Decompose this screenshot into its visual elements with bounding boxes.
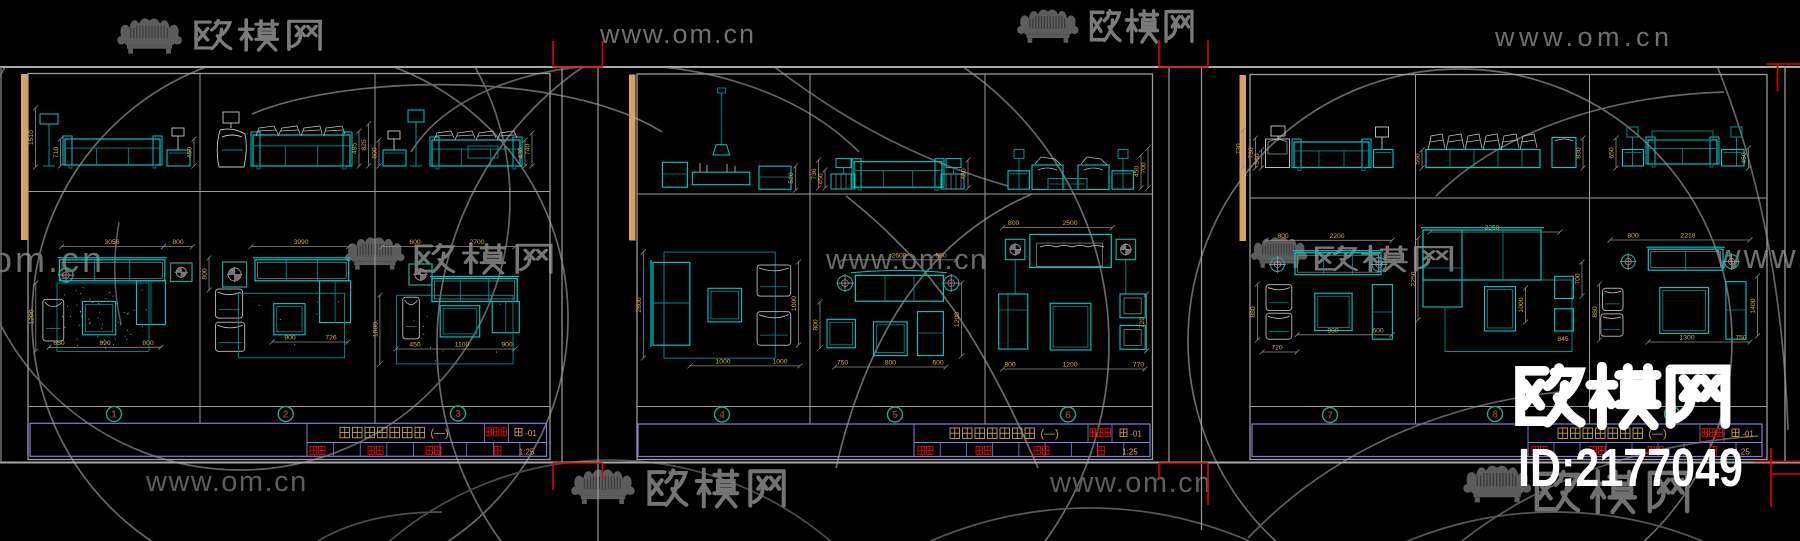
svg-text:1:25: 1:25 xyxy=(519,448,535,457)
svg-text:740: 740 xyxy=(525,144,532,156)
svg-text:750: 750 xyxy=(1735,335,1747,342)
svg-text:1200: 1200 xyxy=(954,312,961,327)
svg-text:1300: 1300 xyxy=(1679,335,1694,342)
svg-text:880: 880 xyxy=(1592,306,1599,318)
svg-text:1000: 1000 xyxy=(772,358,787,365)
svg-text:560: 560 xyxy=(1254,153,1261,165)
svg-text:1: 1 xyxy=(111,410,117,421)
svg-text:ID:2177049: ID:2177049 xyxy=(1518,438,1743,498)
svg-text:www.om: www.om xyxy=(1715,238,1800,276)
svg-text:450: 450 xyxy=(409,342,421,349)
svg-text:450: 450 xyxy=(187,147,194,159)
svg-text:-01: -01 xyxy=(1130,430,1142,439)
svg-text:700: 700 xyxy=(1141,162,1148,174)
svg-text:2250: 2250 xyxy=(1411,271,1418,286)
svg-text:450: 450 xyxy=(961,168,968,180)
svg-text:3: 3 xyxy=(455,409,461,420)
svg-text:990: 990 xyxy=(99,340,111,347)
svg-text:770: 770 xyxy=(1133,362,1145,369)
svg-text:1800: 1800 xyxy=(372,322,379,337)
svg-text:600: 600 xyxy=(372,147,379,159)
svg-text:720: 720 xyxy=(1271,345,1283,352)
svg-text:-01: -01 xyxy=(1742,430,1754,439)
svg-text:3990: 3990 xyxy=(293,239,308,246)
svg-text:1400: 1400 xyxy=(1750,298,1757,313)
svg-text:1200: 1200 xyxy=(1062,362,1077,369)
svg-text:2218: 2218 xyxy=(1680,233,1695,240)
svg-text:1000: 1000 xyxy=(791,296,798,311)
svg-text:2800: 2800 xyxy=(636,297,643,312)
svg-text:2600: 2600 xyxy=(891,252,906,259)
svg-text:710: 710 xyxy=(53,147,60,159)
svg-text:-01: -01 xyxy=(525,429,537,438)
svg-text:600: 600 xyxy=(409,239,421,246)
svg-text:600: 600 xyxy=(1372,327,1384,334)
svg-text:845: 845 xyxy=(1557,336,1569,343)
svg-text:800: 800 xyxy=(1627,233,1639,240)
svg-text:900: 900 xyxy=(1327,327,1339,334)
svg-text:560: 560 xyxy=(1415,153,1422,165)
svg-text:www.om.cn: www.om.cn xyxy=(599,19,756,49)
svg-text:650: 650 xyxy=(1609,147,1616,159)
svg-text:3056: 3056 xyxy=(104,239,119,246)
svg-text:430: 430 xyxy=(518,147,525,159)
svg-text:www.om.cn: www.om.cn xyxy=(1494,22,1674,52)
svg-text:6: 6 xyxy=(1065,410,1071,421)
svg-text:(—): (—) xyxy=(430,427,448,439)
svg-text:www.om.cn: www.om.cn xyxy=(1049,467,1212,499)
svg-text:1100: 1100 xyxy=(455,342,470,349)
svg-text:800: 800 xyxy=(1277,233,1289,240)
svg-text:800: 800 xyxy=(885,360,897,367)
svg-text:800: 800 xyxy=(813,319,820,331)
svg-text:1:25: 1:25 xyxy=(1122,448,1138,457)
svg-text:800: 800 xyxy=(142,340,154,347)
svg-text:450: 450 xyxy=(1741,152,1748,164)
svg-text:600: 600 xyxy=(932,360,944,367)
svg-text:750: 750 xyxy=(837,360,849,367)
svg-text:830: 830 xyxy=(1576,147,1583,159)
svg-text:7: 7 xyxy=(1327,411,1333,422)
svg-text:(—): (—) xyxy=(1040,428,1058,440)
svg-text:www.om.cn: www.om.cn xyxy=(145,466,308,498)
svg-text:730: 730 xyxy=(1236,143,1243,155)
svg-text:520: 520 xyxy=(788,172,795,184)
svg-text:900: 900 xyxy=(501,342,513,349)
svg-text:4: 4 xyxy=(719,410,725,421)
svg-text:450: 450 xyxy=(1134,166,1141,178)
svg-text:1000: 1000 xyxy=(1518,297,1525,312)
svg-text:2500: 2500 xyxy=(1062,220,1077,227)
svg-text:2200: 2200 xyxy=(1329,233,1344,240)
svg-text:1200: 1200 xyxy=(28,309,35,324)
svg-text:485: 485 xyxy=(352,143,359,155)
svg-text:8: 8 xyxy=(1492,410,1498,421)
svg-text:825: 825 xyxy=(361,139,368,151)
svg-text:880: 880 xyxy=(1250,306,1257,318)
svg-text:800: 800 xyxy=(1004,362,1016,369)
svg-text:726: 726 xyxy=(325,335,337,342)
svg-text:800: 800 xyxy=(1008,220,1020,227)
svg-text:650: 650 xyxy=(53,340,65,347)
svg-text:800: 800 xyxy=(202,268,209,280)
svg-text:550: 550 xyxy=(935,252,947,259)
svg-text:700: 700 xyxy=(1575,273,1582,285)
svg-text:1000: 1000 xyxy=(715,358,730,365)
svg-text:800: 800 xyxy=(172,239,184,246)
svg-text:5: 5 xyxy=(892,410,898,421)
svg-text:450: 450 xyxy=(818,173,825,185)
svg-text:2: 2 xyxy=(283,410,289,421)
svg-text:1510: 1510 xyxy=(28,130,35,145)
svg-text:900: 900 xyxy=(284,335,296,342)
svg-text:2700: 2700 xyxy=(469,239,484,246)
svg-text:720: 720 xyxy=(1139,317,1146,329)
